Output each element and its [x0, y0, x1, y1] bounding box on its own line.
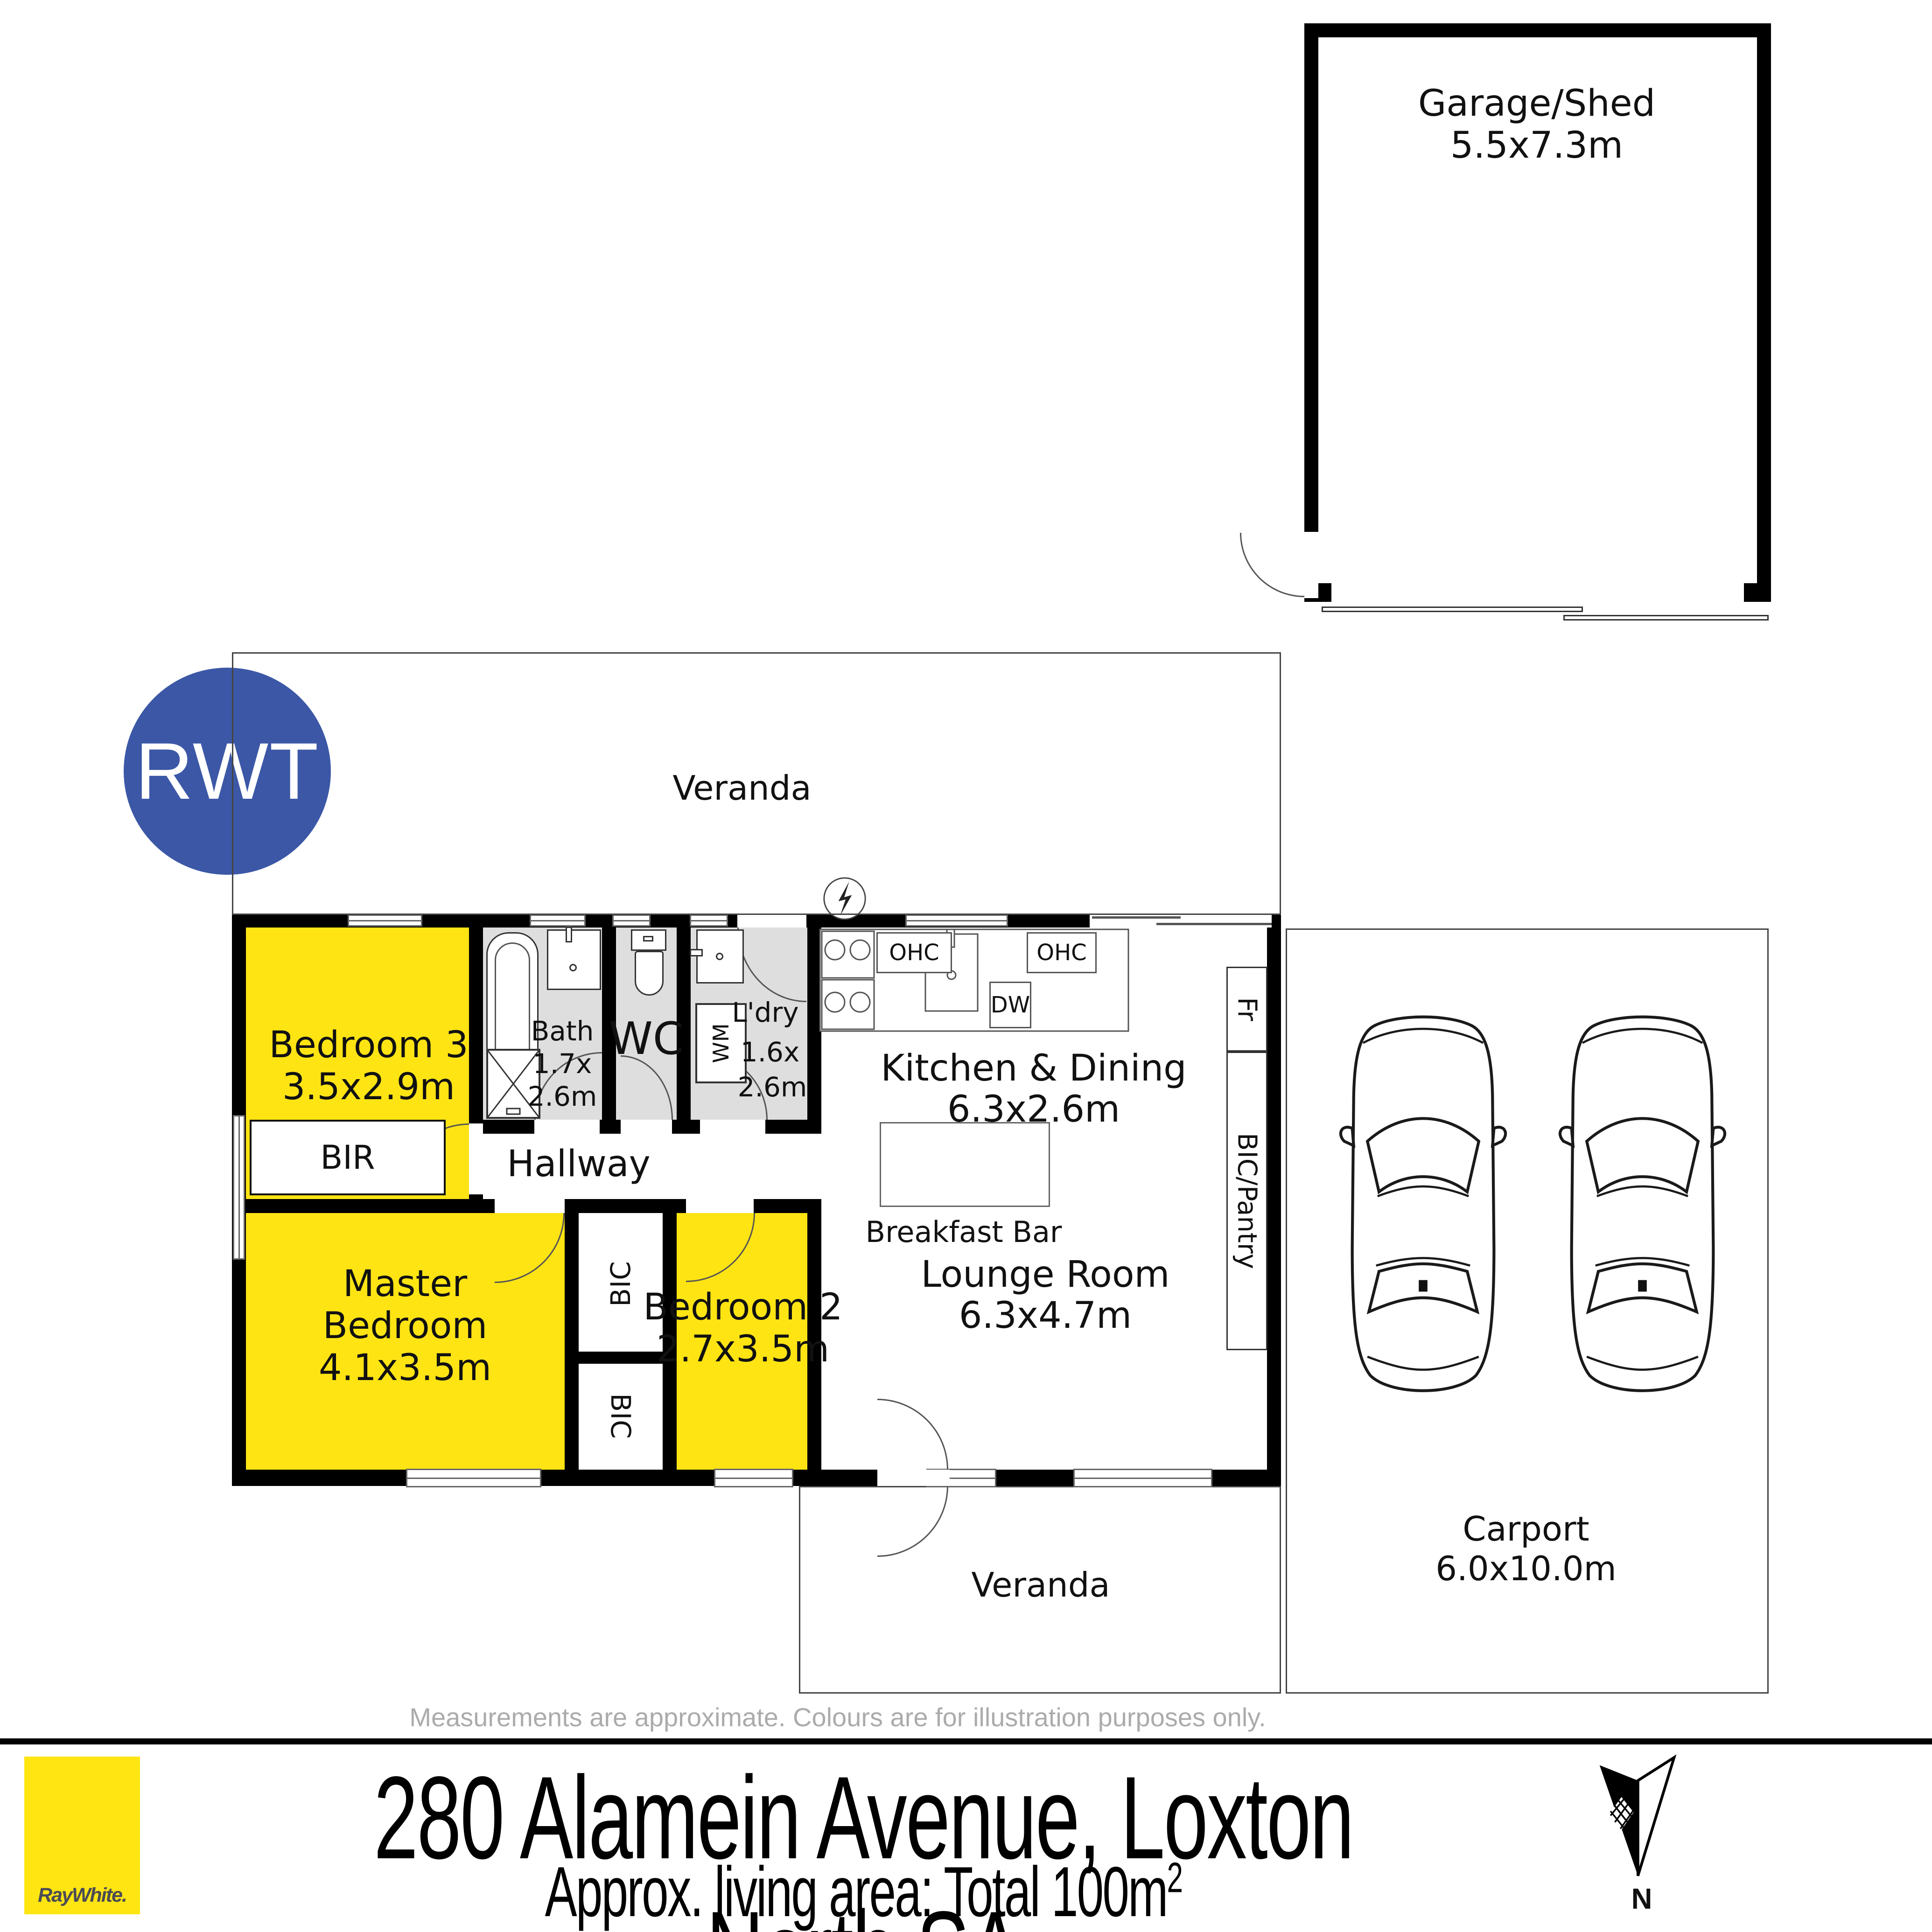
breakfast-bar-label: Breakfast Bar: [866, 1217, 1062, 1247]
garage-wall-top: [1304, 23, 1771, 37]
ohc-left-box: OHC: [876, 932, 952, 973]
bir-box: BIR: [250, 1120, 446, 1195]
laundry-tap: [690, 949, 703, 956]
window-laundry-top: [690, 914, 728, 927]
ohc-left-label: OHC: [889, 940, 939, 966]
window-master-left: [233, 1115, 245, 1260]
stove-lower: [822, 980, 874, 1029]
laundry-drain: [716, 953, 723, 960]
laundry-dims-2: 2.6m: [738, 1073, 807, 1102]
footer-divider: [0, 1738, 1932, 1744]
wall-master-right: [565, 1213, 579, 1470]
window-bedroom2-bottom: [714, 1469, 793, 1487]
sliding-door-leaf-2: [1156, 923, 1272, 925]
garage-dims: 5.5x7.3m: [1450, 127, 1623, 165]
bath-dims-2: 2.6m: [528, 1082, 597, 1111]
bedroom3-label: Bedroom 3: [269, 1026, 468, 1065]
north-arrow-icon: [1589, 1754, 1685, 1880]
laundry-dims-1: 1.6x: [741, 1038, 800, 1067]
window-bedroom3-top: [348, 914, 422, 927]
bath-vanity: [547, 929, 601, 990]
dishwasher-box: DW: [989, 982, 1031, 1028]
raywhite-logo: RayWhite.: [24, 1757, 140, 1914]
laundry-door-gap: [700, 1120, 765, 1134]
hallway-label: Hallway: [507, 1145, 651, 1184]
lounge-label: Lounge Room: [921, 1256, 1169, 1294]
bedroom3-dims: 3.5x2.9m: [282, 1068, 455, 1107]
lounge-door-arc-upper: [877, 1399, 948, 1470]
master-label-1: Master: [343, 1265, 467, 1304]
fridge-box: Fr: [1226, 967, 1267, 1052]
footer-area-text: Approx. living area: Total 100m: [545, 1852, 1167, 1932]
sliding-door-gap-top: [1090, 914, 1272, 928]
bath-vanity-drain: [569, 964, 577, 971]
bedroom2-label: Bedroom 2: [643, 1289, 842, 1327]
bic-upper-label: BIC: [605, 1261, 637, 1306]
garage-label: Garage/Shed: [1418, 85, 1655, 123]
disclaimer-text: Measurements are approximate. Colours ar…: [0, 1702, 1675, 1732]
bath-door-gap: [534, 1120, 600, 1134]
kitchen-label: Kitchen & Dining: [881, 1050, 1186, 1088]
wc-label: WC: [609, 1016, 684, 1063]
dishwasher-label: DW: [991, 992, 1030, 1018]
fridge-label: Fr: [1232, 997, 1262, 1021]
toilet-bowl: [635, 951, 664, 996]
ohc-right-label: OHC: [1036, 940, 1086, 966]
pantry-box: BIC/Pantry: [1226, 1052, 1267, 1350]
house-wall-right: [1267, 914, 1281, 1486]
bic-lower-label: BIC: [605, 1393, 637, 1438]
bedroom2-dims: 2.7x3.5m: [657, 1331, 829, 1369]
window-lounge-bottom-2: [1073, 1469, 1212, 1487]
laundry-ext-door-gap: [737, 914, 806, 928]
ohc-right-box: OHC: [1027, 932, 1097, 973]
laundry-label: L'dry: [732, 998, 798, 1027]
stove-upper: [822, 931, 874, 978]
bath-vanity-tap: [566, 927, 572, 942]
footer-area-sup: 2: [1167, 1854, 1182, 1901]
lounge-dims: 6.3x4.7m: [959, 1297, 1132, 1335]
bath-dims-1: 1.7x: [533, 1050, 592, 1078]
carport-dims: 6.0x10.0m: [1435, 1551, 1617, 1587]
veranda-bottom-label: Veranda: [971, 1568, 1110, 1603]
carport-label: Carport: [1463, 1512, 1589, 1547]
master-label-2: Bedroom: [323, 1307, 488, 1346]
veranda-top-label: Veranda: [672, 771, 811, 806]
garage-sliding-door-right: [1563, 615, 1769, 621]
north-label: N: [1618, 1883, 1665, 1916]
sliding-door-leaf-1: [1092, 916, 1181, 919]
garage-wall-stub-right: [1744, 583, 1771, 602]
pantry-label: BIC/Pantry: [1232, 1133, 1262, 1269]
car-2: [1555, 975, 1730, 1435]
garage-sliding-door-left: [1322, 607, 1583, 612]
garage-wall-left: [1304, 23, 1318, 583]
garage-door-gap: [1304, 532, 1318, 598]
window-bath-top: [530, 914, 586, 927]
window-wc-top: [612, 914, 651, 927]
toilet-button: [643, 936, 653, 942]
bir-label: BIR: [320, 1138, 375, 1177]
bath-label: Bath: [531, 1017, 594, 1046]
car-1: [1336, 975, 1511, 1435]
window-kitchen-top: [905, 914, 1008, 927]
garage-wall-right: [1757, 23, 1771, 583]
breakfast-bar: [880, 1122, 1050, 1207]
master-dims: 4.1x3.5m: [319, 1349, 491, 1388]
washing-machine-label: WM: [708, 1023, 734, 1063]
bedroom3-door-gap: [469, 1123, 483, 1194]
garage-door-arc: [1240, 533, 1304, 597]
wc-door-gap: [621, 1120, 672, 1134]
window-master-bottom: [406, 1469, 541, 1487]
floor-plan-page: Garage/Shed 5.5x7.3m RWT Veranda Carport…: [0, 0, 1932, 1932]
lounge-door-gap: [877, 1470, 950, 1486]
master-door-gap: [495, 1199, 565, 1213]
bedroom2-door-gap: [686, 1199, 754, 1213]
raywhite-logo-text: RayWhite.: [24, 1884, 140, 1907]
footer-area: Approx. living area: Total 100m2: [371, 1851, 1355, 1932]
